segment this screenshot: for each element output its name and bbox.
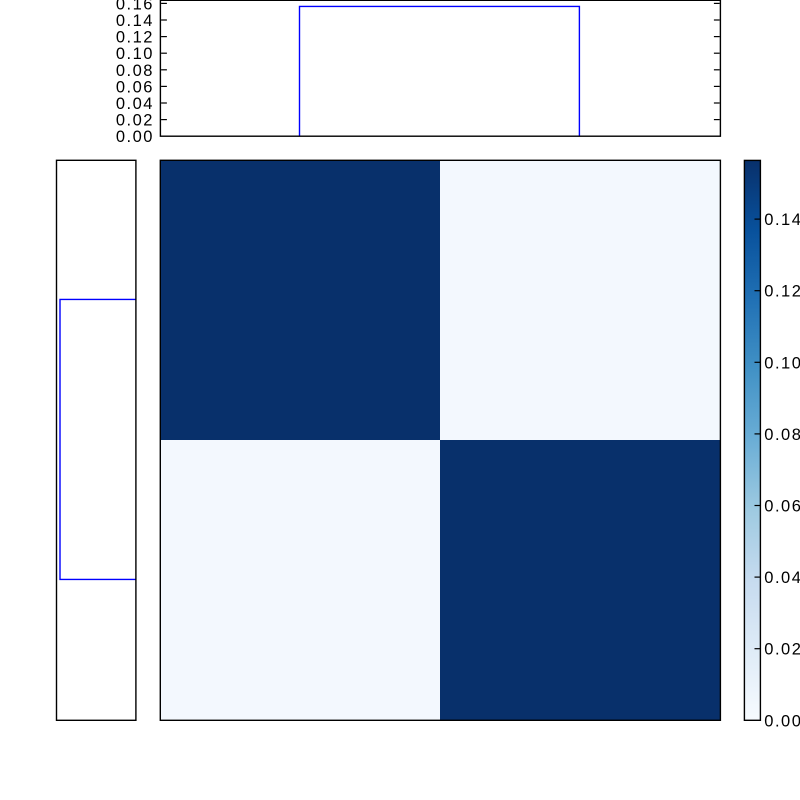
svg-text:0.00: 0.00	[764, 712, 800, 730]
svg-text:0.08: 0.08	[116, 62, 154, 80]
svg-text:0.12: 0.12	[116, 29, 154, 47]
svg-text:0.10: 0.10	[116, 45, 154, 63]
svg-text:0.06: 0.06	[116, 78, 154, 96]
svg-text:0.04: 0.04	[116, 95, 154, 113]
svg-text:0.16: 0.16	[116, 0, 154, 13]
svg-text:0.06: 0.06	[764, 498, 800, 516]
svg-text:0.12: 0.12	[764, 283, 800, 301]
svg-text:0.04: 0.04	[764, 569, 800, 587]
svg-text:0.08: 0.08	[764, 426, 800, 444]
svg-text:0.14: 0.14	[764, 211, 800, 229]
svg-text:0.14: 0.14	[116, 12, 154, 30]
svg-text:0.02: 0.02	[116, 112, 154, 130]
svg-text:0.00: 0.00	[116, 128, 154, 146]
svg-text:0.10: 0.10	[764, 354, 800, 372]
svg-text:0.02: 0.02	[764, 641, 800, 659]
